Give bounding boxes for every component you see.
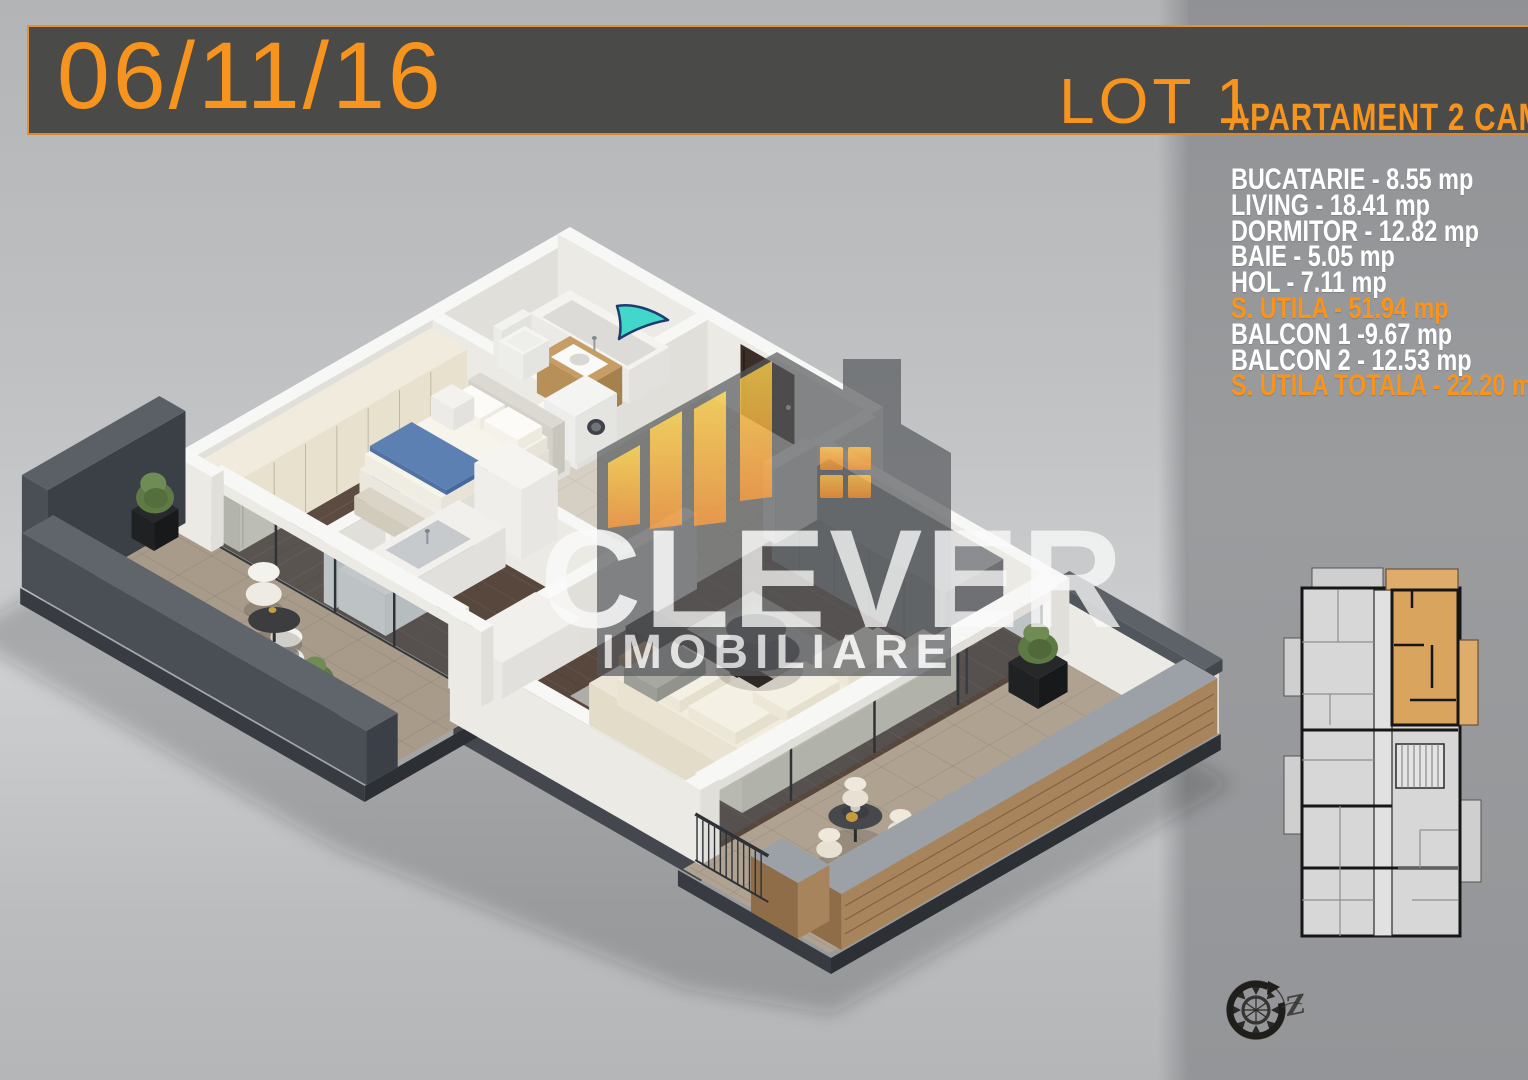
highlighted-unit-balcony	[1386, 569, 1458, 590]
highlighted-unit	[1392, 590, 1458, 725]
header-banner: 06/11/16 LOT 1 APARTAMENT 2 CAMERE	[27, 25, 1528, 135]
building-key-plan	[1280, 556, 1490, 946]
compass-letter: Z	[1282, 989, 1309, 1023]
watermark-tagline: IMOBILIARE	[602, 626, 955, 679]
compass-rose: Z	[1210, 968, 1330, 1060]
key-plan-shapes	[1284, 568, 1481, 936]
area-row-highlight: S. UTILA TOTALA - 22.20 mp	[1231, 373, 1528, 399]
clever-logo: CLEVER IMOBILIARE	[540, 352, 1126, 679]
highlighted-unit-balcony	[1458, 640, 1478, 725]
date-label: 06/11/16	[57, 21, 444, 131]
floorplan-presentation-page: CLEVER IMOBILIARE 06/11/16 LOT 1 APARTAM…	[0, 0, 1528, 1080]
lot-label: LOT 1	[1059, 69, 1256, 133]
apartment-type-label: APARTAMENT 2 CAMERE	[1228, 99, 1528, 137]
room-areas-list: BUCATARIE - 8.55 mp LIVING - 18.41 mp DO…	[1231, 167, 1528, 399]
entrance-direction-arrow	[617, 305, 668, 339]
compass-shapes: Z	[1227, 981, 1309, 1039]
